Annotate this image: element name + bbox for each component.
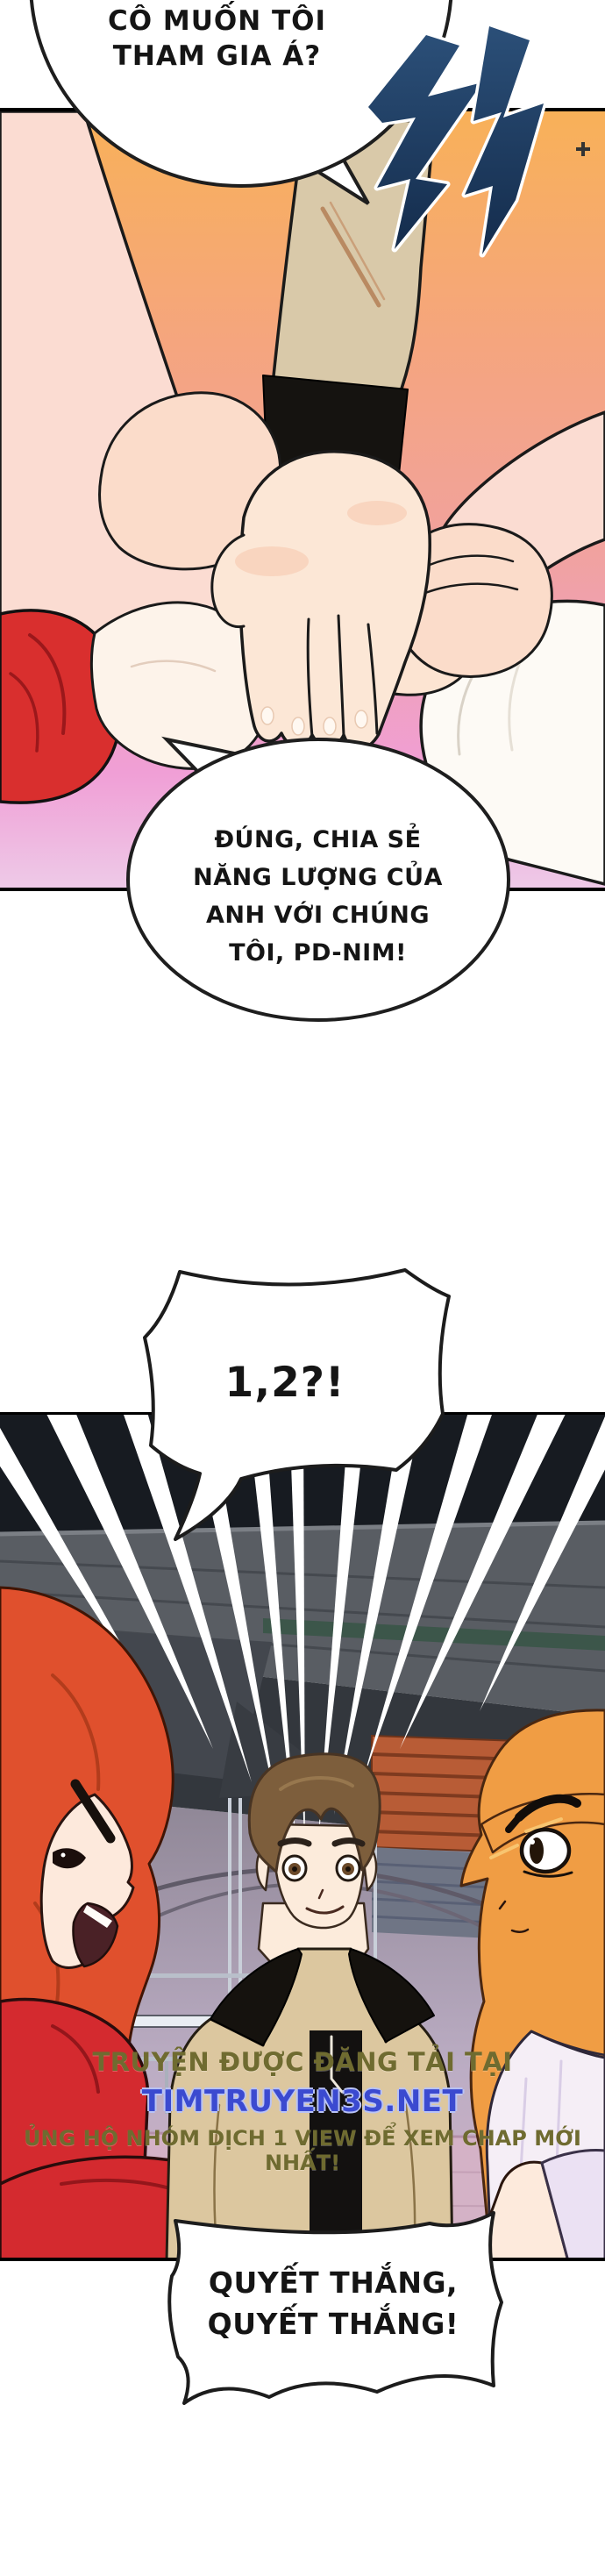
bubble-line: ANH VỚI CHÚNG (132, 896, 504, 934)
bubble-line: CÔ MUỐN TÔI (61, 4, 373, 39)
burst-cheer-text: QUYẾT THẮNG, QUYẾT THẮNG! (158, 2262, 509, 2344)
burst-bubble-count (0, 1263, 605, 1552)
character-right-orangehair (461, 1710, 605, 2261)
burst-count-text: 1,2?! (140, 1361, 430, 1405)
speech-bubble-reply-text: ĐÚNG, CHIA SẺ NĂNG LƯỢNG CỦA ANH VỚI CHÚ… (132, 821, 504, 972)
bubble-line: TÔI, PD-NIM! (132, 934, 504, 972)
bubble-line: THAM GIA Á? (61, 39, 373, 74)
watermark-line-2: ỦNG HỘ NHÓM DỊCH 1 VIEW ĐỂ XEM CHAP MỚI … (0, 2126, 605, 2175)
burst-line: QUYẾT THẮNG, (158, 2262, 509, 2303)
burst-line: QUYẾT THẮNG! (158, 2303, 509, 2344)
burst-line: 1,2?! (140, 1361, 430, 1405)
bubble-line: NĂNG LƯỢNG CỦA (132, 859, 504, 896)
watermark-line-1: TRUYỆN ĐƯỢC ĐĂNG TẢI TẠI (0, 2047, 605, 2077)
watermark-site: TIMTRUYEN3S.NET (0, 2084, 605, 2119)
speech-bubble-top-text: CÔ MUỐN TÔI THAM GIA Á? (61, 4, 373, 74)
webtoon-page: CÔ MUỐN TÔI THAM GIA Á? 척 ĐÚNG, CHIA SẺ … (0, 0, 605, 2576)
bubble-line: ĐÚNG, CHIA SẺ (132, 821, 504, 859)
